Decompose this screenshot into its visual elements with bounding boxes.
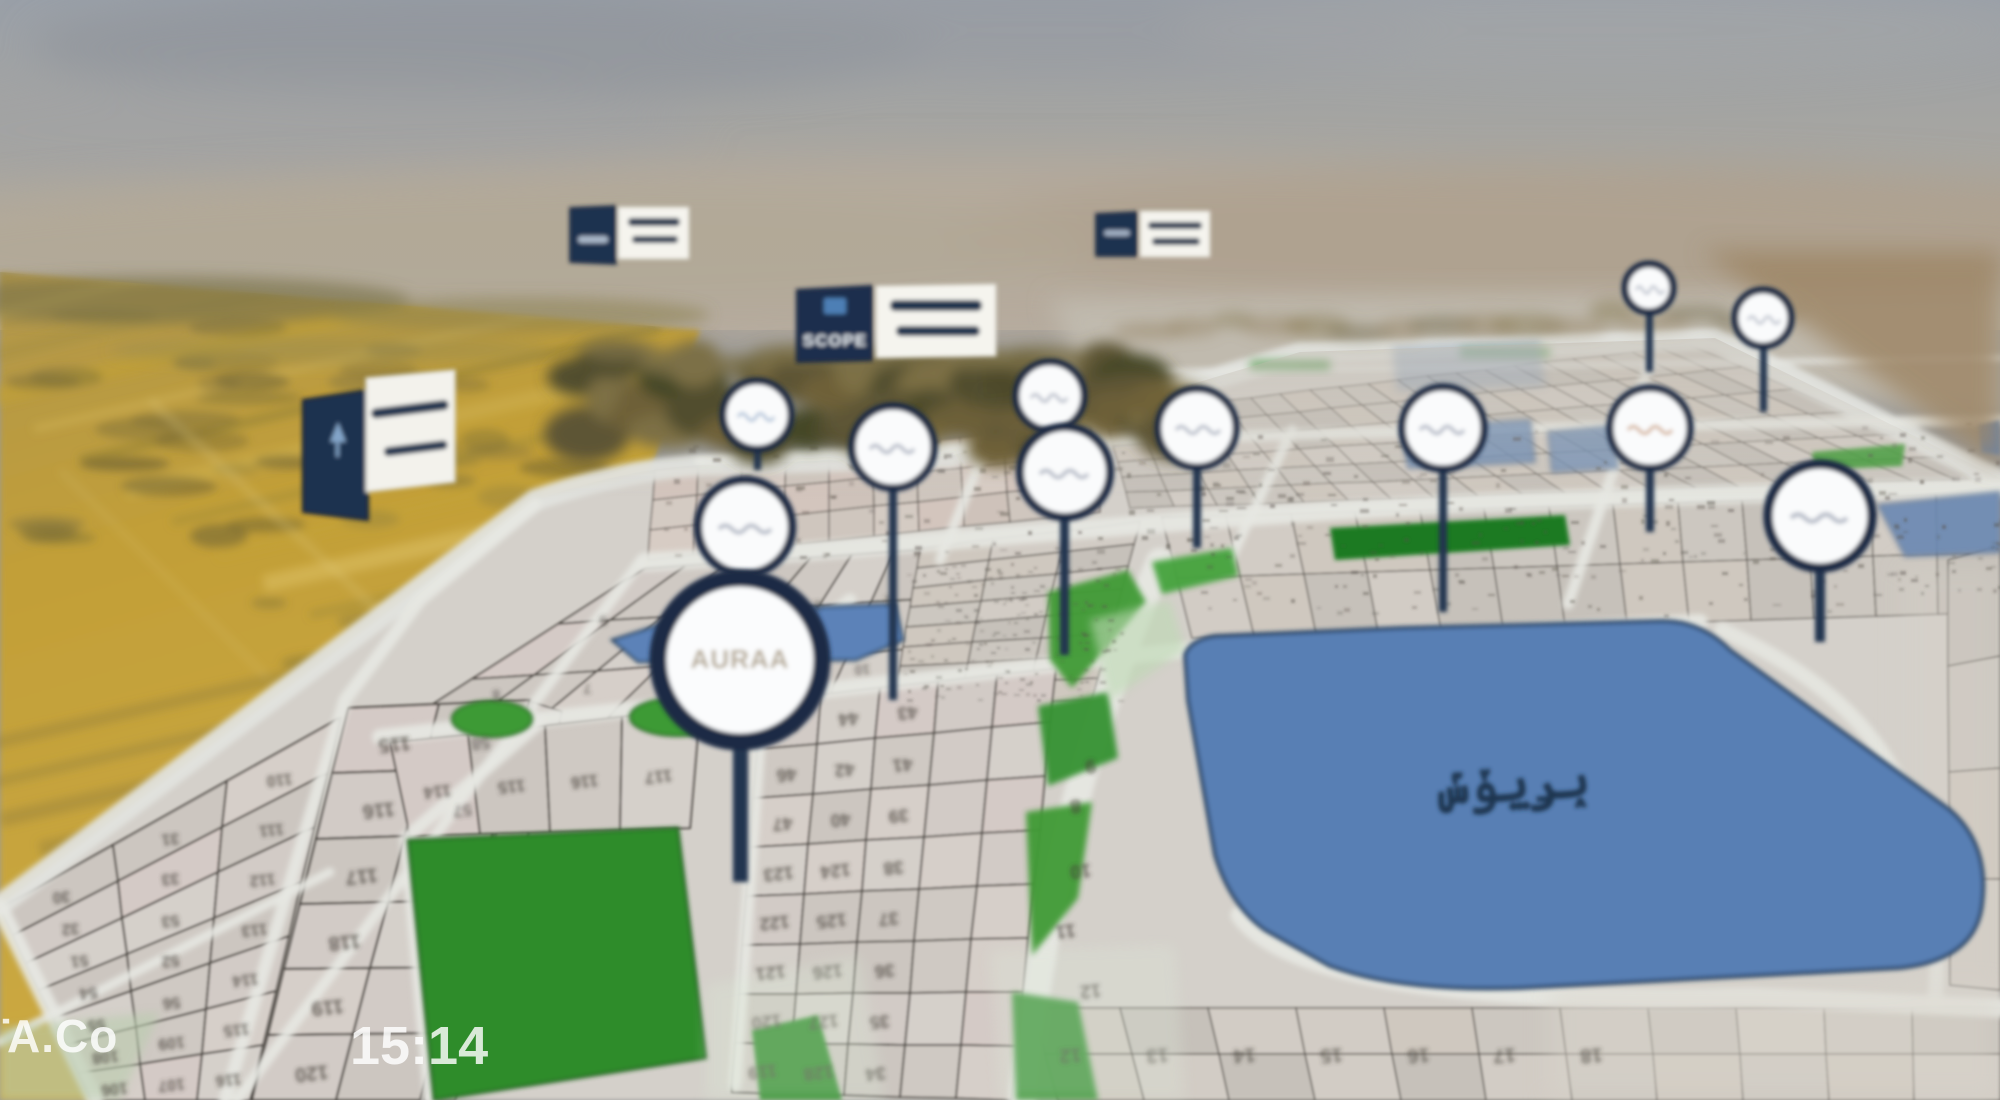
svg-text:120: 120: [294, 1060, 329, 1085]
svg-text:14: 14: [1232, 1043, 1257, 1067]
svg-text:116: 116: [570, 771, 599, 793]
svg-text:56: 56: [162, 993, 182, 1012]
svg-text:113: 113: [241, 920, 269, 940]
svg-text:18: 18: [1580, 1043, 1604, 1066]
svg-text:43: 43: [897, 702, 919, 724]
svg-text:44: 44: [838, 708, 860, 730]
svg-text:111: 111: [258, 820, 285, 840]
svg-text:115: 115: [497, 776, 526, 798]
svg-text:109: 109: [157, 1033, 185, 1053]
svg-text:51: 51: [70, 951, 90, 970]
svg-text:40: 40: [830, 809, 852, 831]
svg-text:46: 46: [776, 764, 798, 786]
svg-text:52: 52: [161, 951, 181, 970]
svg-text:116: 116: [215, 1070, 243, 1090]
svg-text:AURAA: AURAA: [691, 644, 790, 674]
svg-text:125: 125: [816, 909, 848, 932]
svg-text:8: 8: [492, 687, 501, 704]
svg-text:32: 32: [61, 919, 81, 938]
svg-text:15:14: 15:14: [350, 1016, 488, 1076]
svg-text:SCOPE: SCOPE: [803, 331, 868, 350]
svg-text:124: 124: [820, 859, 852, 882]
svg-text:37: 37: [878, 908, 900, 930]
svg-text:16: 16: [1407, 1043, 1431, 1066]
svg-text:107: 107: [157, 1075, 185, 1095]
svg-text:117: 117: [644, 766, 673, 788]
svg-text:9: 9: [1084, 754, 1097, 776]
svg-text:116: 116: [361, 797, 395, 822]
svg-text:15: 15: [1320, 1043, 1344, 1066]
svg-text:57: 57: [452, 800, 473, 821]
svg-text:7: 7: [583, 681, 592, 698]
svg-text:39: 39: [888, 805, 910, 827]
svg-text:119: 119: [310, 994, 344, 1019]
svg-text:53: 53: [161, 911, 181, 930]
svg-text:106: 106: [100, 1079, 128, 1099]
svg-text:5: 5: [599, 613, 608, 630]
svg-text:11: 11: [1054, 919, 1077, 942]
svg-text:31: 31: [161, 829, 181, 848]
svg-text:41: 41: [892, 754, 914, 776]
svg-text:33: 33: [161, 869, 181, 888]
svg-text:114: 114: [422, 781, 452, 803]
svg-text:122: 122: [759, 911, 791, 934]
svg-text:̇A.Co: ̇A.Co: [2, 1010, 118, 1062]
svg-text:118: 118: [327, 929, 361, 954]
svg-text:110: 110: [266, 770, 294, 790]
svg-text:42: 42: [834, 759, 856, 781]
svg-text:115: 115: [377, 731, 411, 756]
svg-text:10: 10: [854, 661, 871, 678]
svg-text:30: 30: [52, 887, 72, 906]
svg-text:58: 58: [470, 733, 491, 754]
svg-text:36: 36: [874, 960, 896, 982]
svg-text:112: 112: [249, 870, 277, 890]
svg-text:8: 8: [1069, 794, 1082, 816]
svg-text:117: 117: [344, 863, 378, 888]
svg-text:115: 115: [223, 1020, 251, 1040]
svg-text:17: 17: [1493, 1043, 1517, 1066]
svg-text:ݕݛݐݸݽ: ݕݛݐݸݽ: [1436, 750, 1592, 817]
svg-text:114: 114: [232, 970, 260, 990]
svg-text:54: 54: [79, 983, 99, 1002]
svg-text:10: 10: [1069, 859, 1092, 882]
svg-text:38: 38: [883, 857, 905, 879]
svg-text:123: 123: [763, 862, 795, 885]
svg-text:47: 47: [772, 813, 794, 835]
